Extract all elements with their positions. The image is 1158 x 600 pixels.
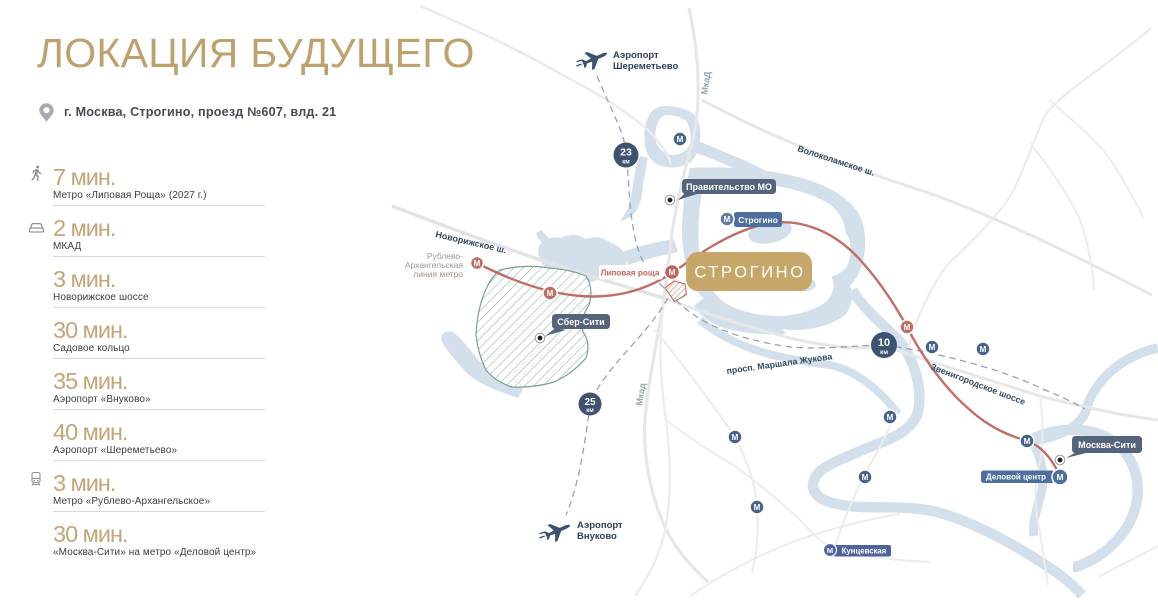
svg-text:23: 23 xyxy=(620,147,632,159)
svg-text:М: М xyxy=(827,546,833,555)
svg-text:Аэропорт: Аэропорт xyxy=(577,520,623,531)
svg-text:М: М xyxy=(904,323,911,332)
svg-text:Москва-Сити: Москва-Сити xyxy=(1078,440,1136,450)
svg-text:МкаД: МкаД xyxy=(699,70,713,95)
svg-text:М: М xyxy=(1056,472,1063,482)
svg-text:М: М xyxy=(754,503,761,512)
svg-text:Строгино: Строгино xyxy=(738,215,778,225)
svg-text:Новорижское ш.: Новорижское ш. xyxy=(435,229,508,255)
svg-text:М: М xyxy=(929,343,936,352)
svg-text:Правительство МО: Правительство МО xyxy=(686,182,772,192)
svg-text:М: М xyxy=(669,268,676,277)
svg-text:М: М xyxy=(1024,437,1031,446)
svg-text:Аэропорт: Аэропорт xyxy=(613,50,659,61)
svg-text:М: М xyxy=(677,135,684,144)
svg-text:М: М xyxy=(862,473,869,482)
svg-text:просп. Маршала Жукова: просп. Маршала Жукова xyxy=(726,351,833,376)
svg-text:Архангельская: Архангельская xyxy=(405,260,464,270)
svg-text:М: М xyxy=(547,289,554,298)
svg-text:Волоколамское ш.: Волоколамское ш. xyxy=(796,143,876,177)
svg-text:Внуково: Внуково xyxy=(577,531,617,542)
svg-text:Рублево-: Рублево- xyxy=(427,251,463,261)
svg-text:Липовая роща: Липовая роща xyxy=(601,269,660,278)
svg-text:линия метро: линия метро xyxy=(413,269,463,279)
svg-text:10: 10 xyxy=(878,337,890,349)
svg-text:М: М xyxy=(732,433,739,442)
svg-text:км: км xyxy=(622,160,630,166)
svg-text:М: М xyxy=(887,413,894,422)
svg-text:км: км xyxy=(880,349,888,356)
svg-text:М: М xyxy=(474,259,481,268)
svg-text:М: М xyxy=(724,215,731,224)
svg-text:25: 25 xyxy=(584,397,596,408)
svg-text:Звенигородское шоссе: Звенигородское шоссе xyxy=(929,362,1027,407)
svg-text:Мкад: Мкад xyxy=(634,382,647,406)
svg-text:М: М xyxy=(980,345,987,354)
svg-text:Кунцевская: Кунцевская xyxy=(842,547,887,556)
svg-text:Шереметьево: Шереметьево xyxy=(613,61,678,72)
svg-text:СТРОГИНО: СТРОГИНО xyxy=(694,264,805,282)
svg-text:Деловой центр: Деловой центр xyxy=(986,473,1046,482)
svg-text:Сбер-Сити: Сбер-Сити xyxy=(557,317,604,327)
svg-text:км: км xyxy=(586,408,594,414)
